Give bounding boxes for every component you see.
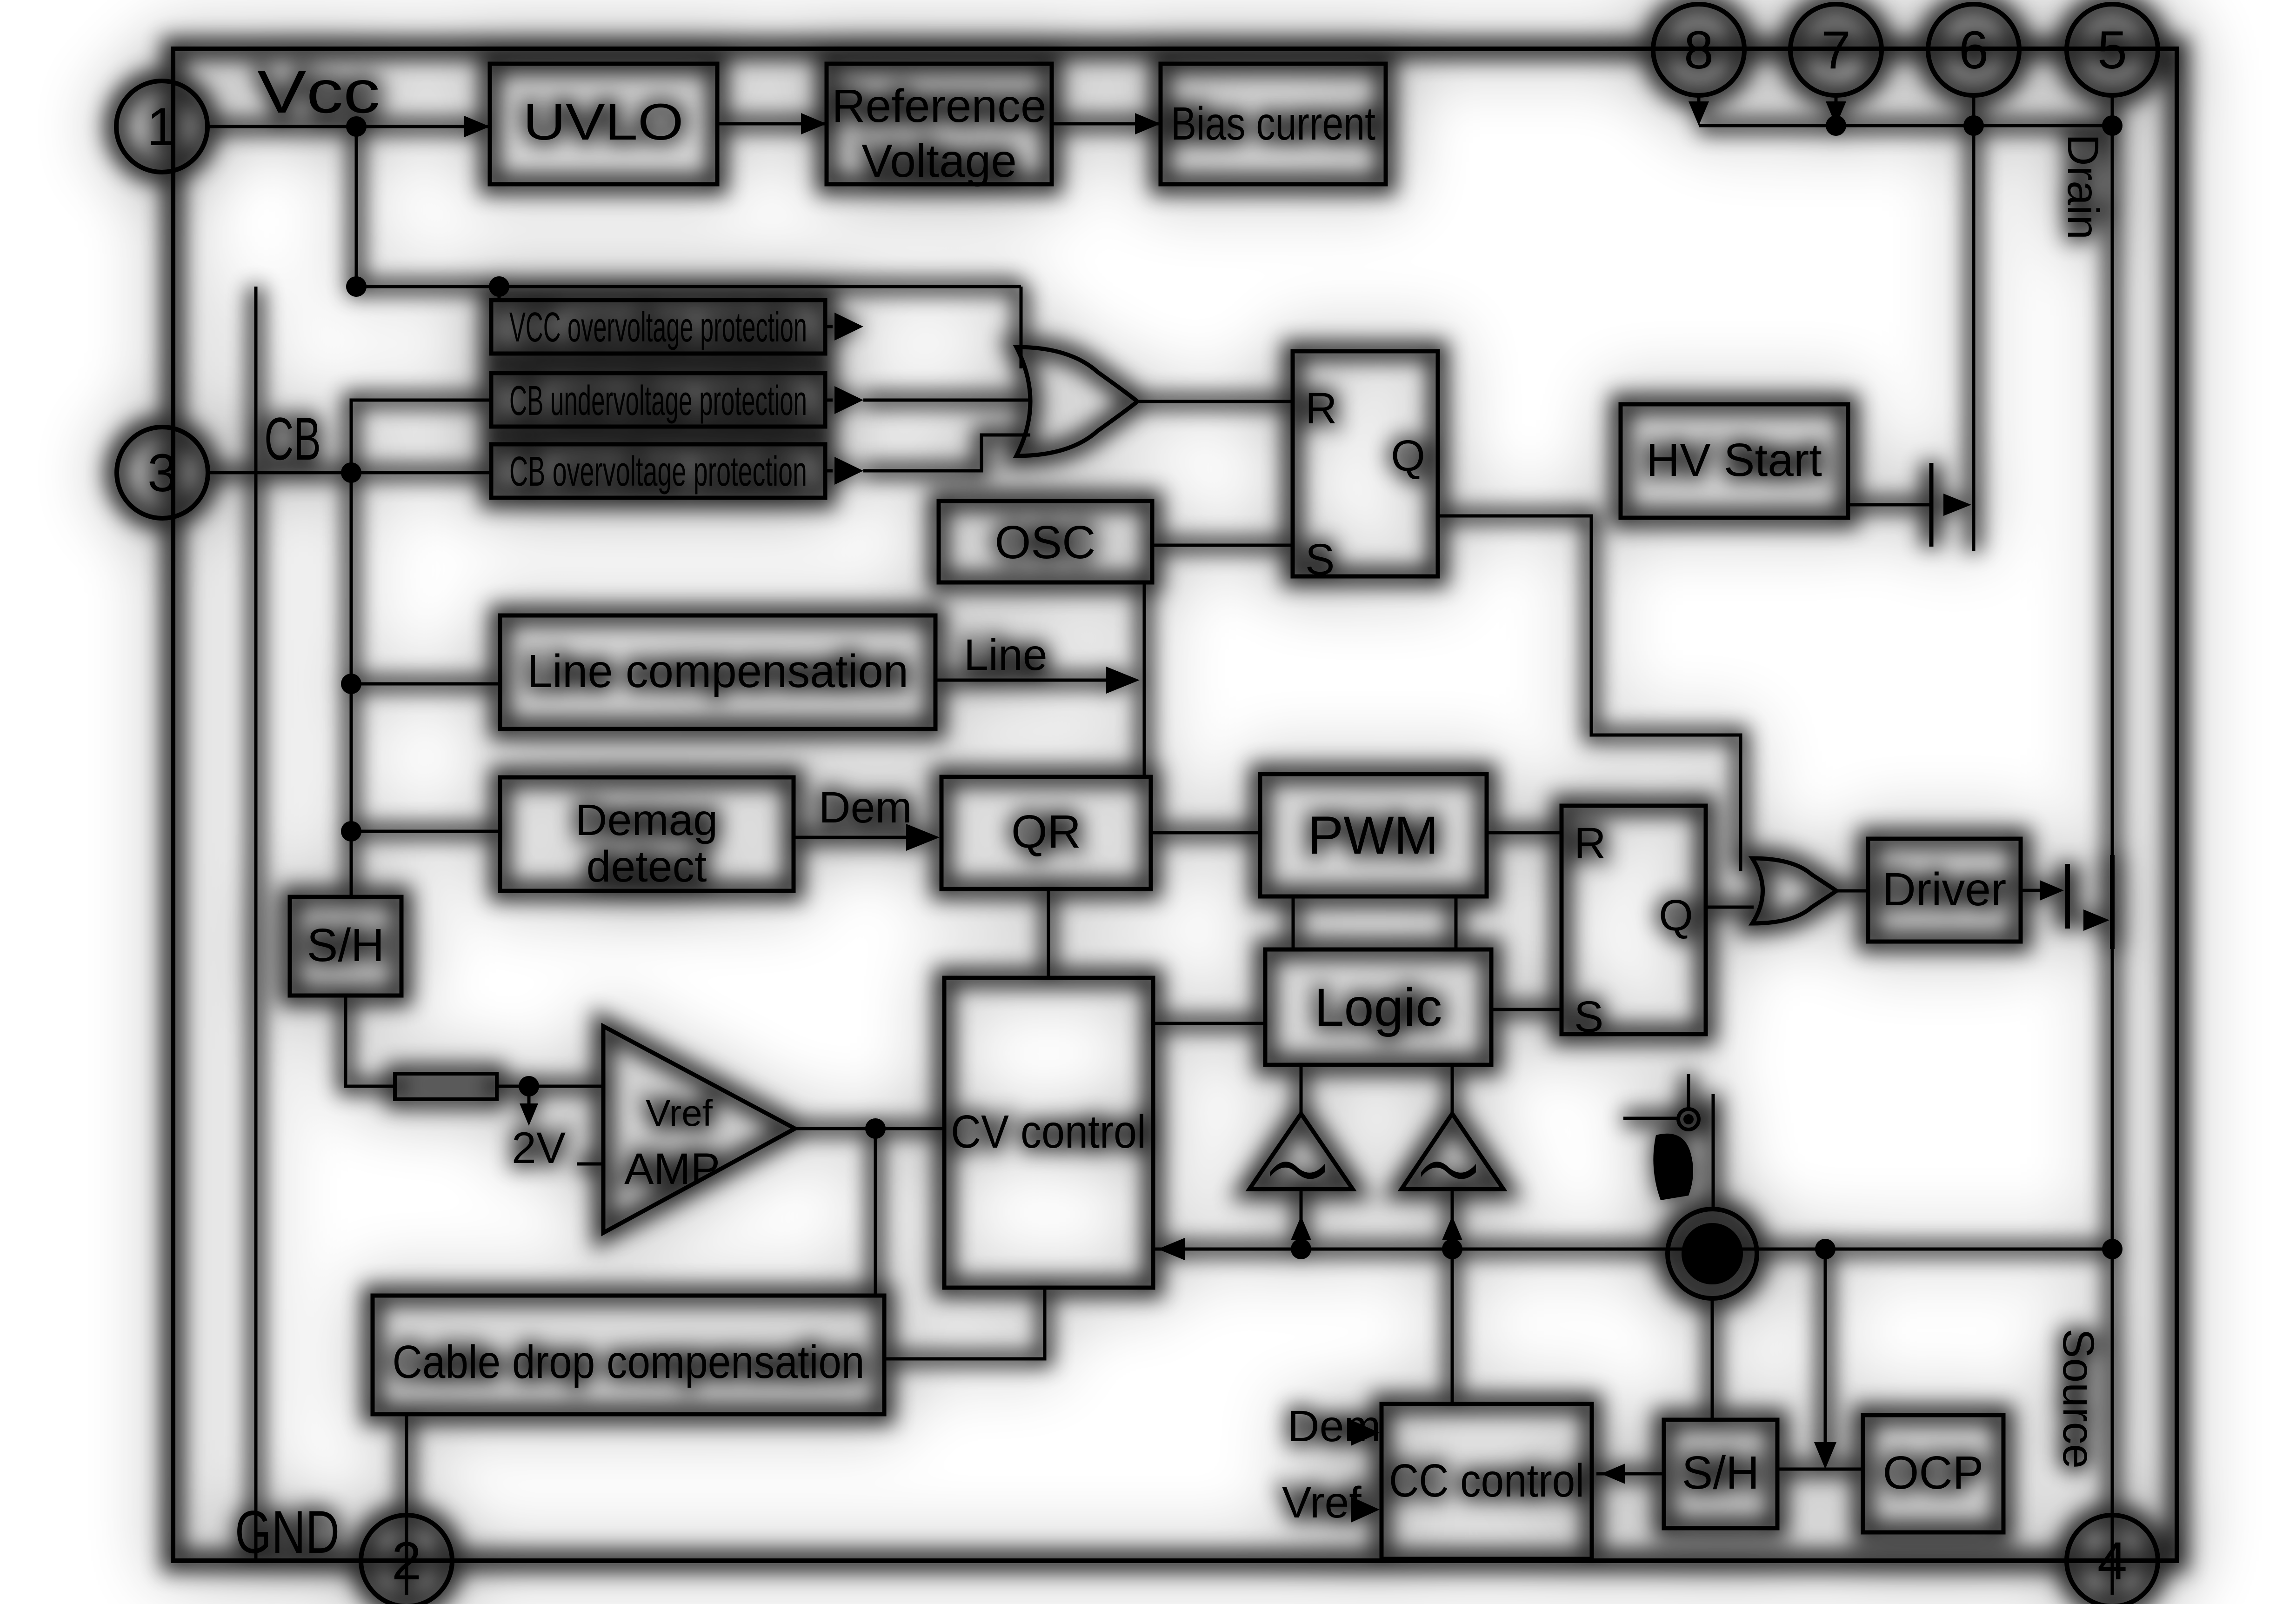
svg-text:2V: 2V [512,1123,566,1173]
svg-text:7: 7 [1821,20,1851,80]
svg-text:Demag: Demag [575,795,718,845]
svg-text:Q: Q [1659,891,1693,940]
svg-text:CB undervoltage protection: CB undervoltage protection [509,378,807,424]
svg-text:Vcc: Vcc [257,58,380,126]
svg-text:S/H: S/H [307,919,385,971]
svg-text:Source: Source [2054,1329,2103,1469]
svg-text:Dem: Dem [819,783,912,832]
svg-text:1: 1 [147,97,177,157]
svg-text:detect: detect [587,842,707,891]
svg-text:S: S [1305,535,1335,584]
svg-text:Bias current: Bias current [1171,98,1375,150]
svg-text:Line: Line [964,630,1048,680]
svg-text:Dem: Dem [1288,1402,1381,1451]
svg-text:Line compensation: Line compensation [527,645,908,697]
svg-text:Reference: Reference [832,80,1046,132]
svg-text:CB overvoltage protection: CB overvoltage protection [509,448,807,495]
svg-text:Vref: Vref [1282,1478,1362,1527]
svg-text:CV control: CV control [951,1106,1146,1158]
svg-text:Vref: Vref [646,1092,713,1134]
svg-text:6: 6 [1959,20,1989,80]
svg-text:S: S [1574,992,1603,1042]
svg-text:Cable drop compensation: Cable drop compensation [393,1336,865,1388]
svg-text:CB: CB [264,405,321,473]
svg-text:R: R [1305,384,1337,433]
svg-text:VCC overvoltage protection: VCC overvoltage protection [509,304,807,351]
svg-text:PWM: PWM [1308,806,1438,865]
svg-text:S/H: S/H [1682,1447,1760,1499]
svg-text:OCP: OCP [1883,1447,1984,1499]
svg-text:QR: QR [1011,806,1081,858]
svg-text:OSC: OSC [995,516,1096,568]
svg-text:R: R [1574,819,1606,868]
svg-text:8: 8 [1684,20,1714,80]
svg-text:3: 3 [147,443,177,503]
svg-text:HV Start: HV Start [1646,434,1822,486]
svg-text:UVLO: UVLO [523,94,684,151]
svg-text:CC control: CC control [1389,1455,1584,1507]
svg-text:Q: Q [1391,431,1425,481]
svg-text:Drain: Drain [2058,134,2108,240]
svg-text:AMP: AMP [624,1144,720,1194]
svg-text:Voltage: Voltage [861,135,1017,187]
svg-text:GND: GND [235,1498,340,1566]
svg-text:Driver: Driver [1882,863,2007,916]
svg-text:5: 5 [2097,20,2127,80]
svg-text:Logic: Logic [1315,978,1442,1037]
